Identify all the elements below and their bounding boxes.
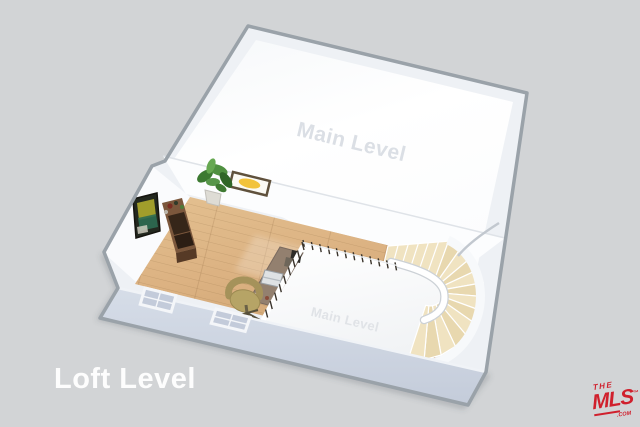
tv-screen (133, 193, 160, 238)
mls-logo: THE MLS™ .COM (591, 378, 638, 423)
logo-mls-text: MLS™ (591, 386, 636, 414)
loft-level-title: Loft Level (54, 363, 196, 396)
floorplan-page: Main Level Main Level Loft Level THE MLS… (0, 0, 640, 427)
logo-trademark: ™ (633, 390, 638, 397)
